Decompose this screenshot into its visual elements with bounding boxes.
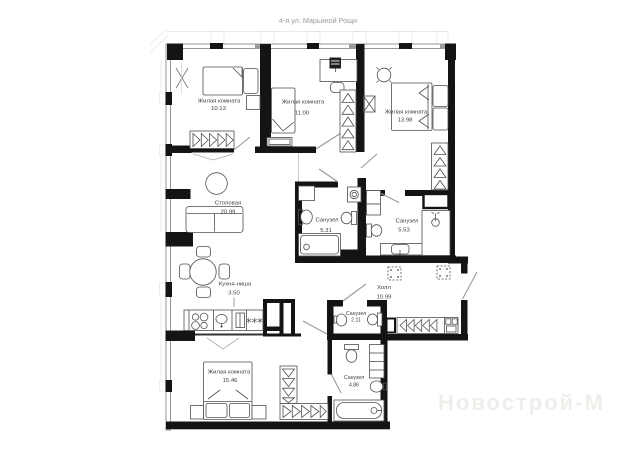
svg-text:4-я ул. Марьиной Рощи: 4-я ул. Марьиной Рощи bbox=[279, 16, 357, 25]
svg-text:Жилая комната: Жилая комната bbox=[385, 110, 428, 116]
svg-text:2.11: 2.11 bbox=[351, 318, 361, 324]
svg-text:13.98: 13.98 bbox=[398, 118, 413, 124]
svg-text:10.13: 10.13 bbox=[211, 106, 226, 112]
svg-text:20.99: 20.99 bbox=[221, 210, 236, 216]
svg-text:Кухня-ниша: Кухня-ниша bbox=[219, 282, 252, 288]
svg-text:Новострой-М: Новострой-М bbox=[438, 390, 605, 415]
svg-text:Жилая комната: Жилая комната bbox=[208, 370, 251, 376]
svg-text:11.00: 11.00 bbox=[295, 111, 310, 117]
svg-text:Холл: Холл bbox=[377, 285, 391, 291]
svg-text:Столовая: Столовая bbox=[215, 201, 241, 207]
svg-text:Санузел: Санузел bbox=[346, 311, 366, 317]
svg-text:Жилая комната: Жилая комната bbox=[282, 100, 325, 106]
svg-text:5.31: 5.31 bbox=[320, 228, 331, 234]
svg-text:Санузел: Санузел bbox=[344, 375, 364, 381]
svg-text:Санузел: Санузел bbox=[396, 219, 420, 225]
svg-text:3.50: 3.50 bbox=[228, 291, 240, 297]
svg-text:4.86: 4.86 bbox=[349, 383, 359, 389]
svg-text:5.53: 5.53 bbox=[398, 228, 410, 234]
svg-text:Санузел: Санузел bbox=[316, 218, 340, 224]
svg-text:15.46: 15.46 bbox=[223, 378, 238, 384]
svg-text:Жилая комната: Жилая комната bbox=[198, 99, 241, 105]
svg-text:10.99: 10.99 bbox=[377, 295, 392, 301]
